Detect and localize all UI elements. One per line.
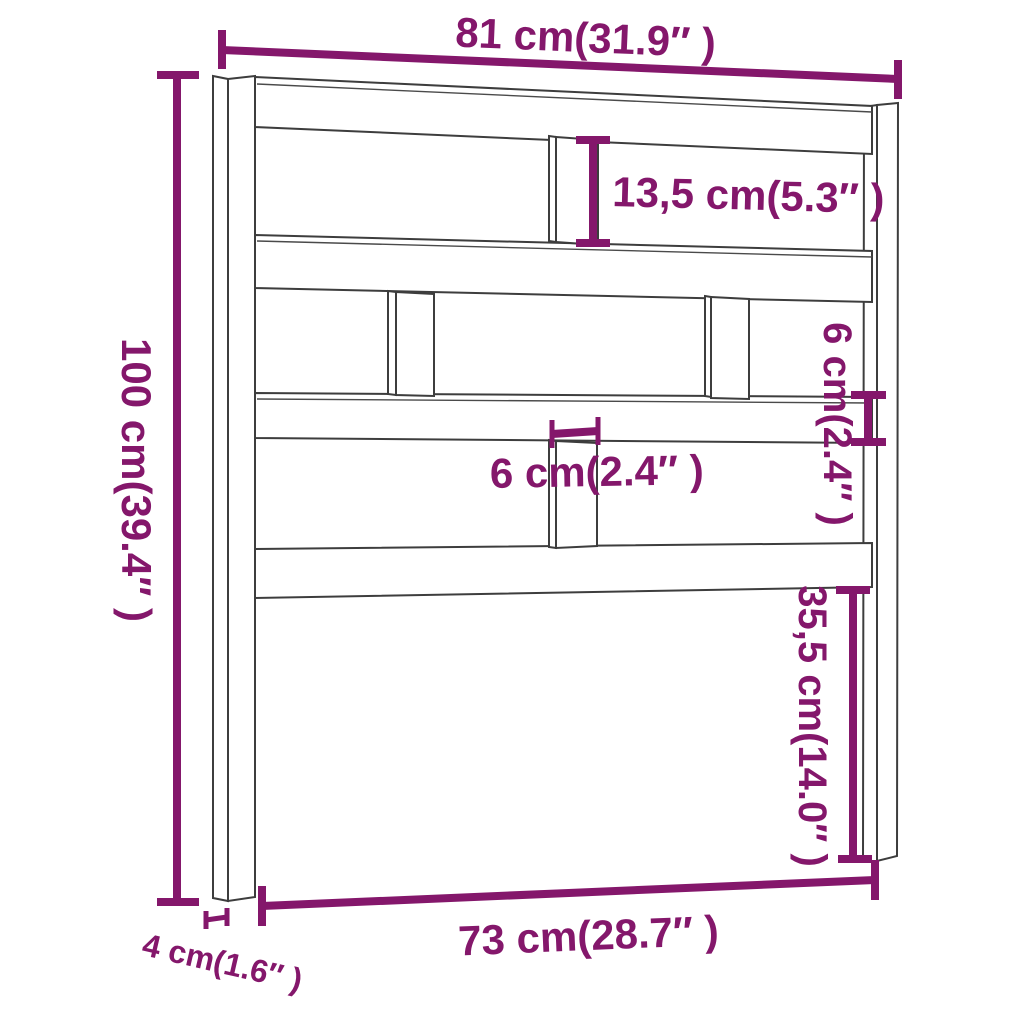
dimension-overall-height: 100 cm(39.4″ ) bbox=[113, 75, 199, 902]
dimension-label-upper-gap-height: 13,5 cm(5.3″ ) bbox=[612, 168, 885, 222]
dimension-label-lower-section-height: 35,5 cm(14.0″ ) bbox=[790, 585, 834, 867]
headboard-dimension-diagram: 81 cm(31.9″ ) 100 cm(39.4″ ) 13,5 cm(5.3… bbox=[0, 0, 1024, 1024]
dimension-line bbox=[552, 431, 598, 434]
headboard-middle-left-slat bbox=[388, 291, 434, 396]
dimension-label-rail-thickness: 6 cm(2.4″ ) bbox=[815, 322, 859, 526]
dimension-upper-gap-height: 13,5 cm(5.3″ ) bbox=[576, 140, 885, 243]
dimension-label-slat-width: 6 cm(2.4″ ) bbox=[489, 446, 704, 497]
dimension-leg-depth: 4 cm(1.6″ ) bbox=[139, 908, 306, 998]
headboard-second-rail bbox=[255, 235, 872, 302]
dimension-label-leg-depth: 4 cm(1.6″ ) bbox=[139, 926, 306, 998]
dimension-line bbox=[206, 917, 227, 920]
dimension-label-inner-width: 73 cm(28.7″ ) bbox=[457, 907, 719, 965]
dimension-label-overall-height: 100 cm(39.4″ ) bbox=[113, 338, 160, 622]
dimension-inner-width: 73 cm(28.7″ ) bbox=[262, 860, 875, 964]
dimension-lower-section-height: 35,5 cm(14.0″ ) bbox=[790, 585, 872, 867]
dimension-line bbox=[262, 880, 875, 906]
product-dimension-image: 81 cm(31.9″ ) 100 cm(39.4″ ) 13,5 cm(5.3… bbox=[0, 0, 1024, 1024]
headboard-fourth-rail bbox=[255, 543, 872, 598]
headboard-left-leg bbox=[213, 76, 255, 901]
headboard-middle-right-slat bbox=[705, 296, 749, 399]
